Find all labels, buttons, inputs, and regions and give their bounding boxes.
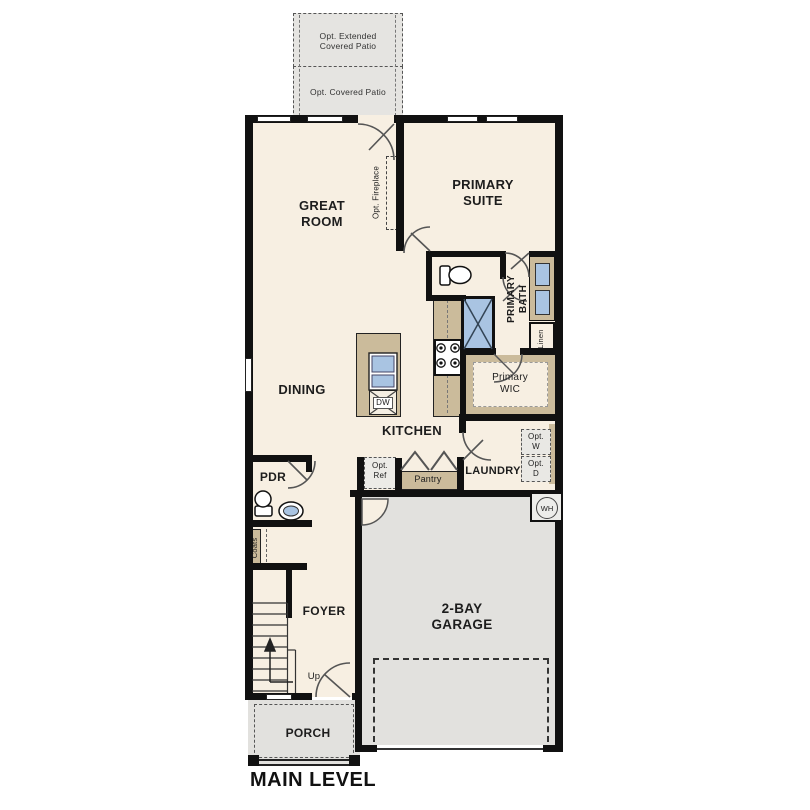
room-label-pdr: PDR	[253, 470, 293, 485]
stairs-up-label: Up	[303, 671, 325, 683]
plan-detail-layer	[0, 0, 810, 810]
water-heater-label: WH	[541, 504, 554, 513]
pantry-double-doors	[401, 452, 457, 470]
room-label-kitchen: KITCHEN	[372, 423, 452, 439]
opt-washer-label: Opt. W	[524, 432, 548, 452]
room-label-great-room: GREAT ROOM	[287, 198, 357, 230]
room-label-laundry: LAUNDRY	[461, 465, 525, 478]
dishwasher-label: DW	[373, 397, 393, 409]
linen-label: Linen	[536, 319, 546, 359]
room-label-porch: PORCH	[278, 726, 338, 741]
patio-covered-label: Opt. Covered Patio	[298, 87, 398, 97]
primary-toilet	[440, 266, 471, 285]
range-burners	[437, 344, 459, 367]
room-label-primary-bath: PRIMARY BATH	[506, 260, 530, 338]
opt-dryer-label: Opt. D	[524, 459, 548, 479]
opt-fireplace-label: Opt. Fireplace	[372, 156, 383, 230]
room-label-garage: 2-BAY GARAGE	[422, 601, 502, 634]
patio-extended-label: Opt. Extended Covered Patio	[303, 31, 393, 52]
laundry-door	[463, 432, 491, 460]
pdr-sink	[279, 502, 303, 520]
suite-entry-door	[404, 227, 430, 253]
level-caption: MAIN LEVEL	[250, 769, 376, 792]
water-heater-box: WH	[530, 492, 563, 522]
room-label-primary-suite: PRIMARY SUITE	[443, 177, 523, 209]
room-label-dining: DINING	[267, 382, 337, 398]
pantry-label: Pantry	[403, 474, 453, 485]
water-heater-circle: WH	[536, 497, 558, 519]
shower-glass	[464, 299, 492, 349]
island-sink	[369, 353, 397, 390]
stairs-up-arrow	[265, 639, 293, 682]
garage-entry-door	[362, 499, 388, 525]
pdr-toilet	[255, 491, 272, 516]
coats-label: Coats	[250, 528, 260, 568]
opt-ref-label: Opt. Ref	[366, 461, 394, 481]
room-label-primary-wic: Primary WIC	[481, 372, 539, 396]
floor-plan: Opt. Extended Covered Patio Opt. Covered…	[0, 0, 810, 810]
room-label-foyer: FOYER	[299, 604, 349, 619]
